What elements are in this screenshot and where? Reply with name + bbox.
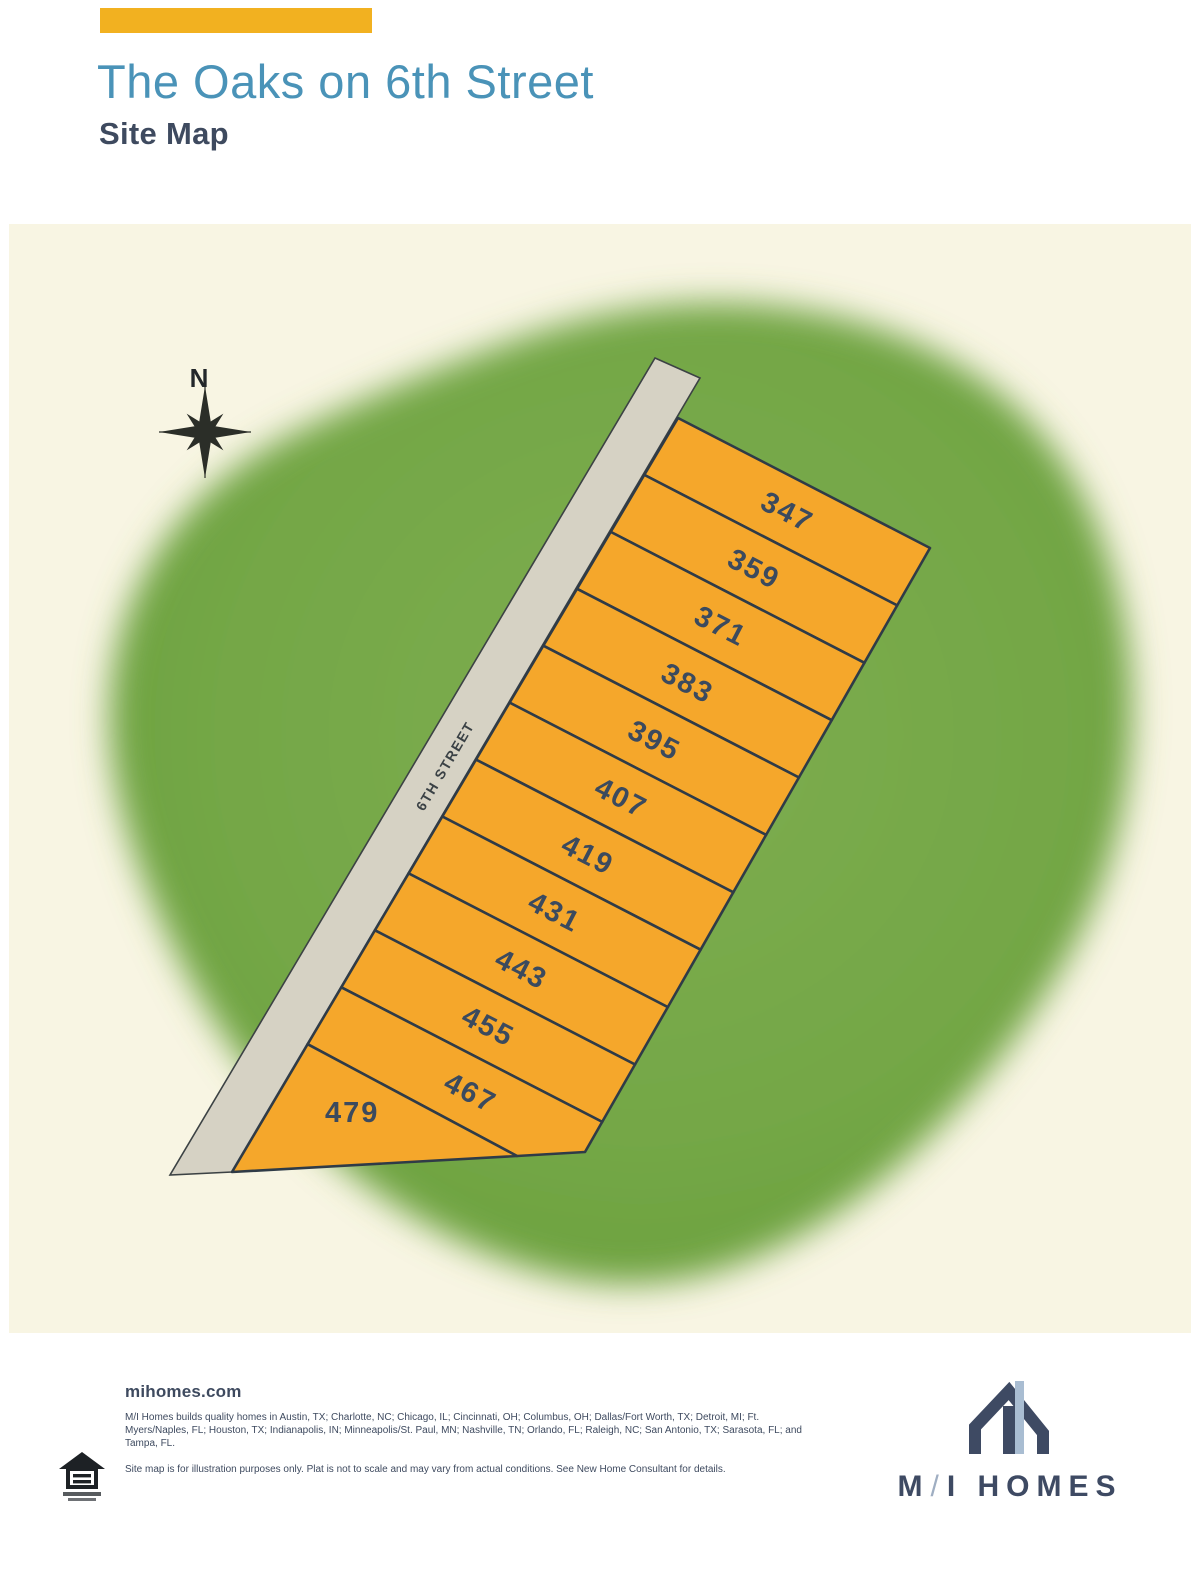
- logo-m: M: [897, 1470, 929, 1503]
- equal-housing-icon: [57, 1450, 107, 1504]
- markets-text: M/I Homes builds quality homes in Austin…: [125, 1411, 815, 1450]
- compass-n-label: N: [190, 363, 209, 393]
- accent-bar: [100, 8, 372, 33]
- website-text: mihomes.com: [125, 1382, 815, 1402]
- logo-slash: /: [929, 1470, 946, 1503]
- logo-ihomes: I HOMES: [947, 1470, 1123, 1503]
- site-map-panel: 347359371383395407419431443455467479 6TH…: [9, 224, 1191, 1333]
- logo-house-icon: [964, 1378, 1056, 1458]
- site-map-flyer: The Oaks on 6th Street Site Map 34735937…: [0, 0, 1200, 1590]
- mi-homes-logo: M/I HOMES: [880, 1378, 1140, 1504]
- page-title: The Oaks on 6th Street: [97, 54, 594, 109]
- site-map-canvas: 347359371383395407419431443455467479 6TH…: [9, 224, 1191, 1333]
- page-subtitle: Site Map: [99, 116, 229, 152]
- lot-number-label: 479: [325, 1097, 379, 1129]
- disclaimer-text: Site map is for illustration purposes on…: [125, 1463, 815, 1476]
- logo-wordmark: M/I HOMES: [880, 1470, 1140, 1504]
